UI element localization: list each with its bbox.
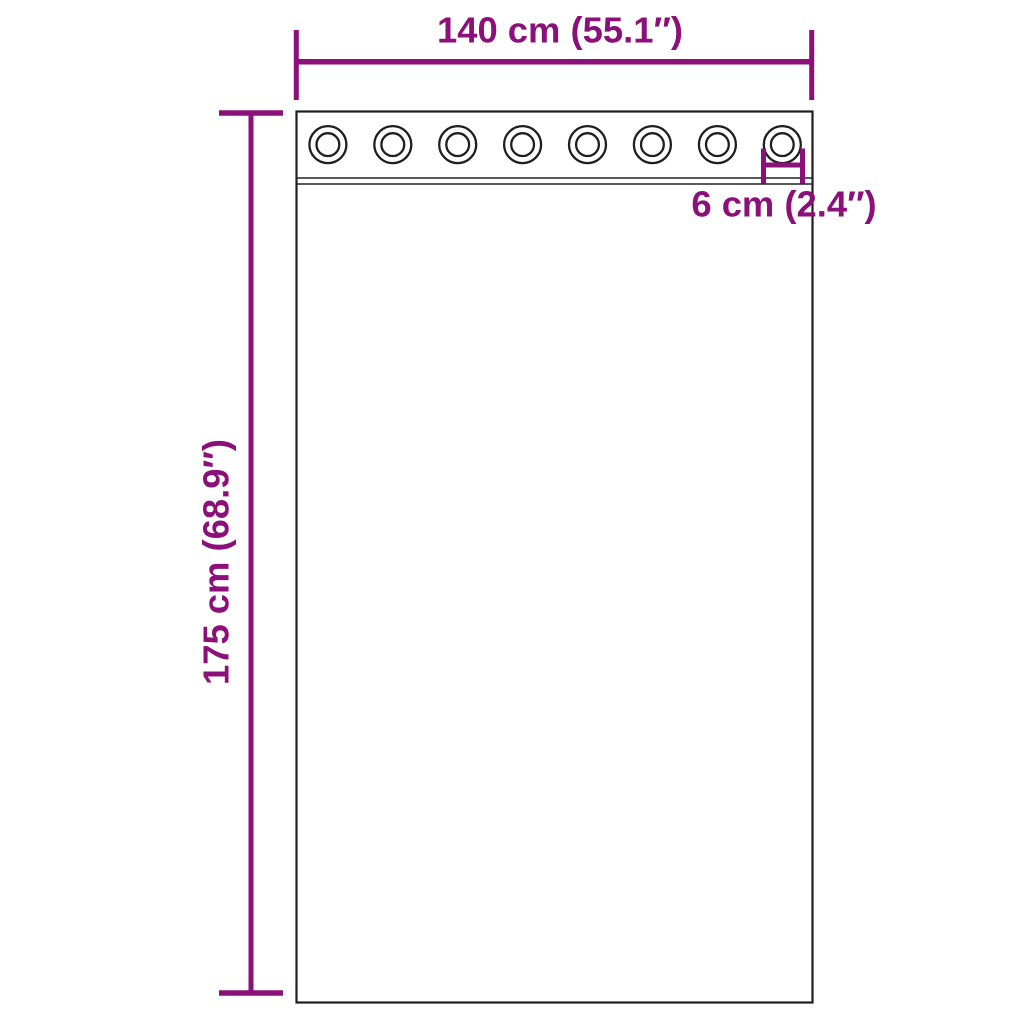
- svg-text:140 cm (55.1″): 140 cm (55.1″): [437, 9, 683, 50]
- svg-text:175 cm (68.9″): 175 cm (68.9″): [196, 439, 237, 685]
- svg-text:6 cm (2.4″): 6 cm (2.4″): [691, 184, 876, 225]
